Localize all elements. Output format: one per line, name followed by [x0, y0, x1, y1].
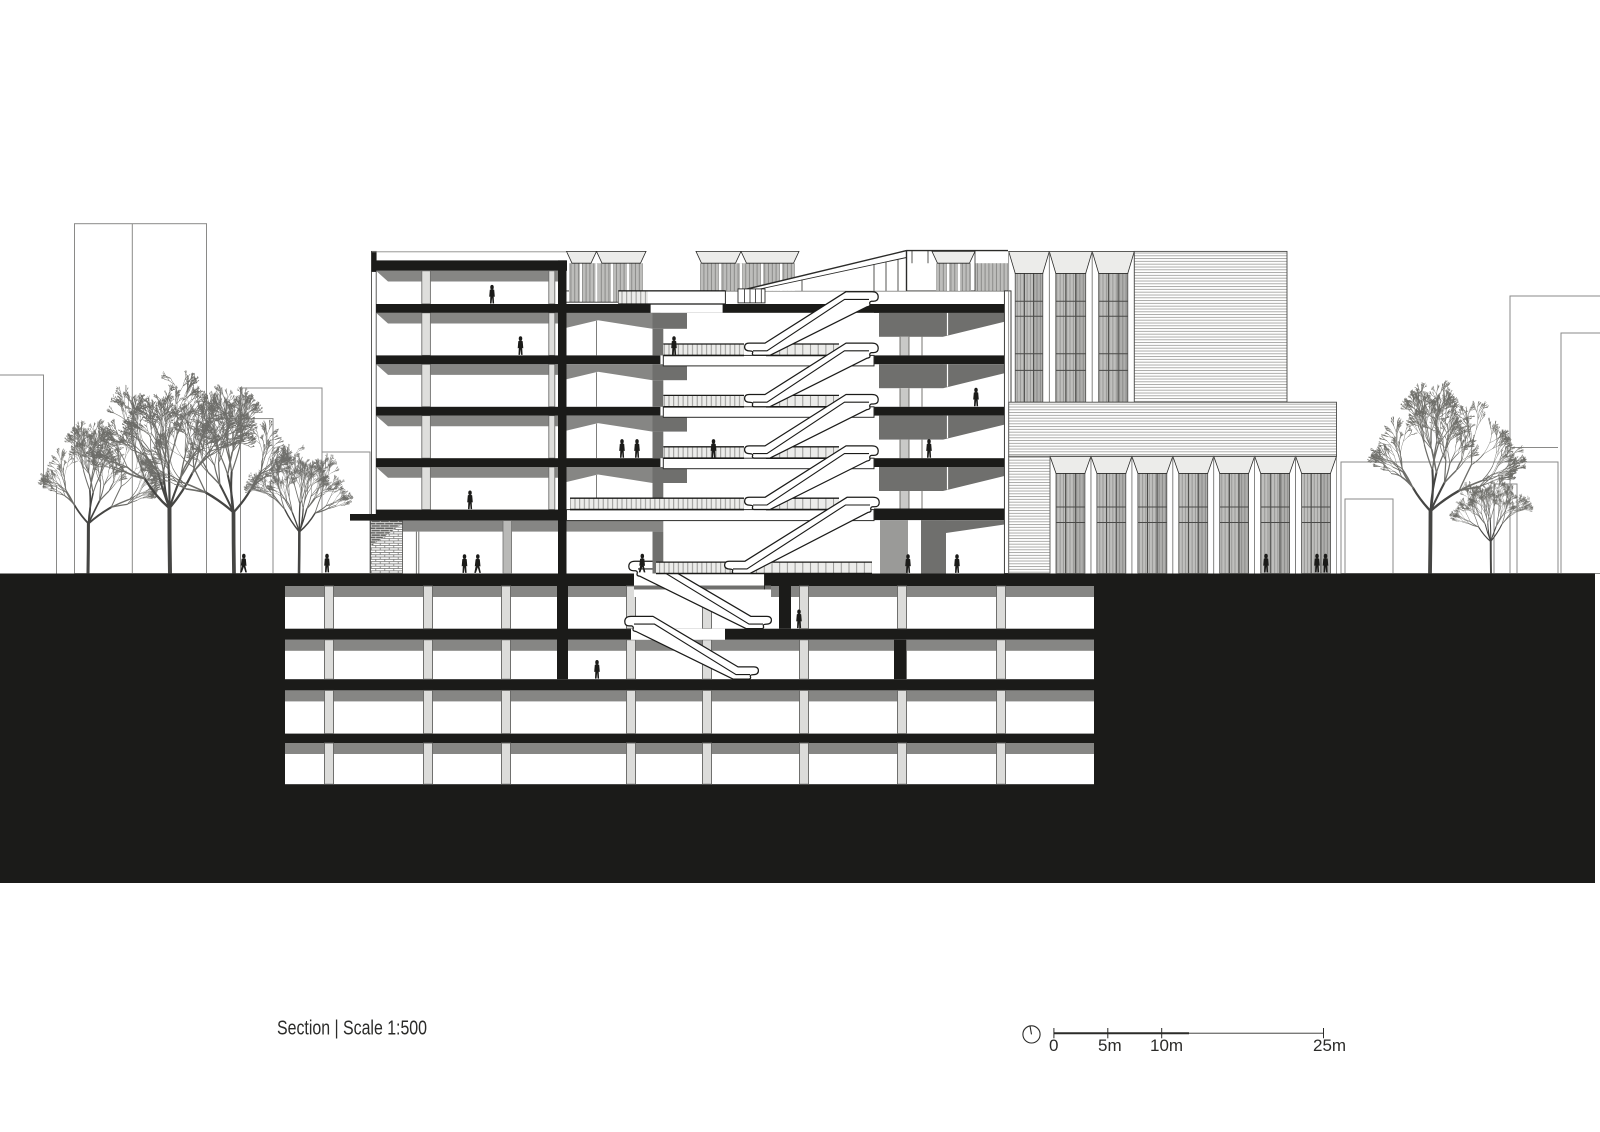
svg-text:10m: 10m	[1150, 1036, 1183, 1055]
svg-text:5m: 5m	[1098, 1036, 1122, 1055]
svg-text:0: 0	[1049, 1036, 1058, 1055]
svg-text:25m: 25m	[1313, 1036, 1346, 1055]
svg-text:Section | Scale 1:500: Section | Scale 1:500	[277, 1017, 427, 1040]
